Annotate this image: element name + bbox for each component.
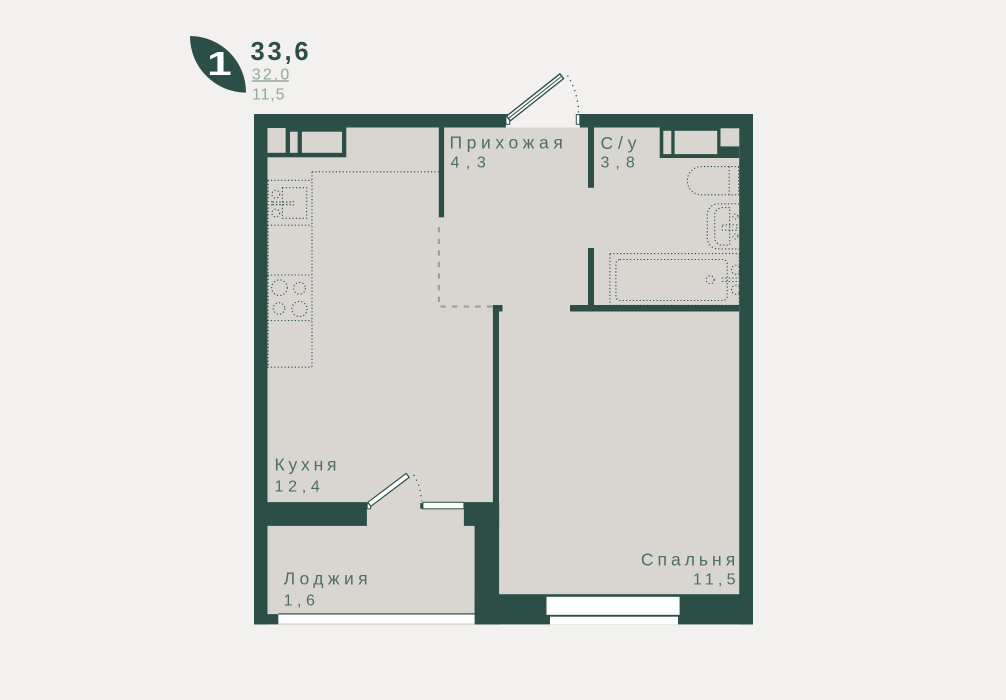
- svg-text:Прихожая: Прихожая: [450, 132, 568, 152]
- svg-text:С/у: С/у: [601, 133, 642, 153]
- svg-text:4,3: 4,3: [451, 155, 493, 172]
- svg-text:Спальня: Спальня: [641, 550, 739, 570]
- svg-text:3,8: 3,8: [601, 155, 641, 172]
- svg-text:12,4: 12,4: [275, 478, 325, 495]
- svg-text:33,6: 33,6: [251, 38, 312, 66]
- svg-text:Кухня: Кухня: [275, 455, 341, 475]
- svg-text:1: 1: [207, 45, 232, 83]
- svg-text:11,5: 11,5: [252, 87, 286, 104]
- svg-text:11,5: 11,5: [693, 571, 740, 588]
- svg-text:1,6: 1,6: [284, 593, 320, 610]
- svg-text:Лоджия: Лоджия: [284, 568, 372, 588]
